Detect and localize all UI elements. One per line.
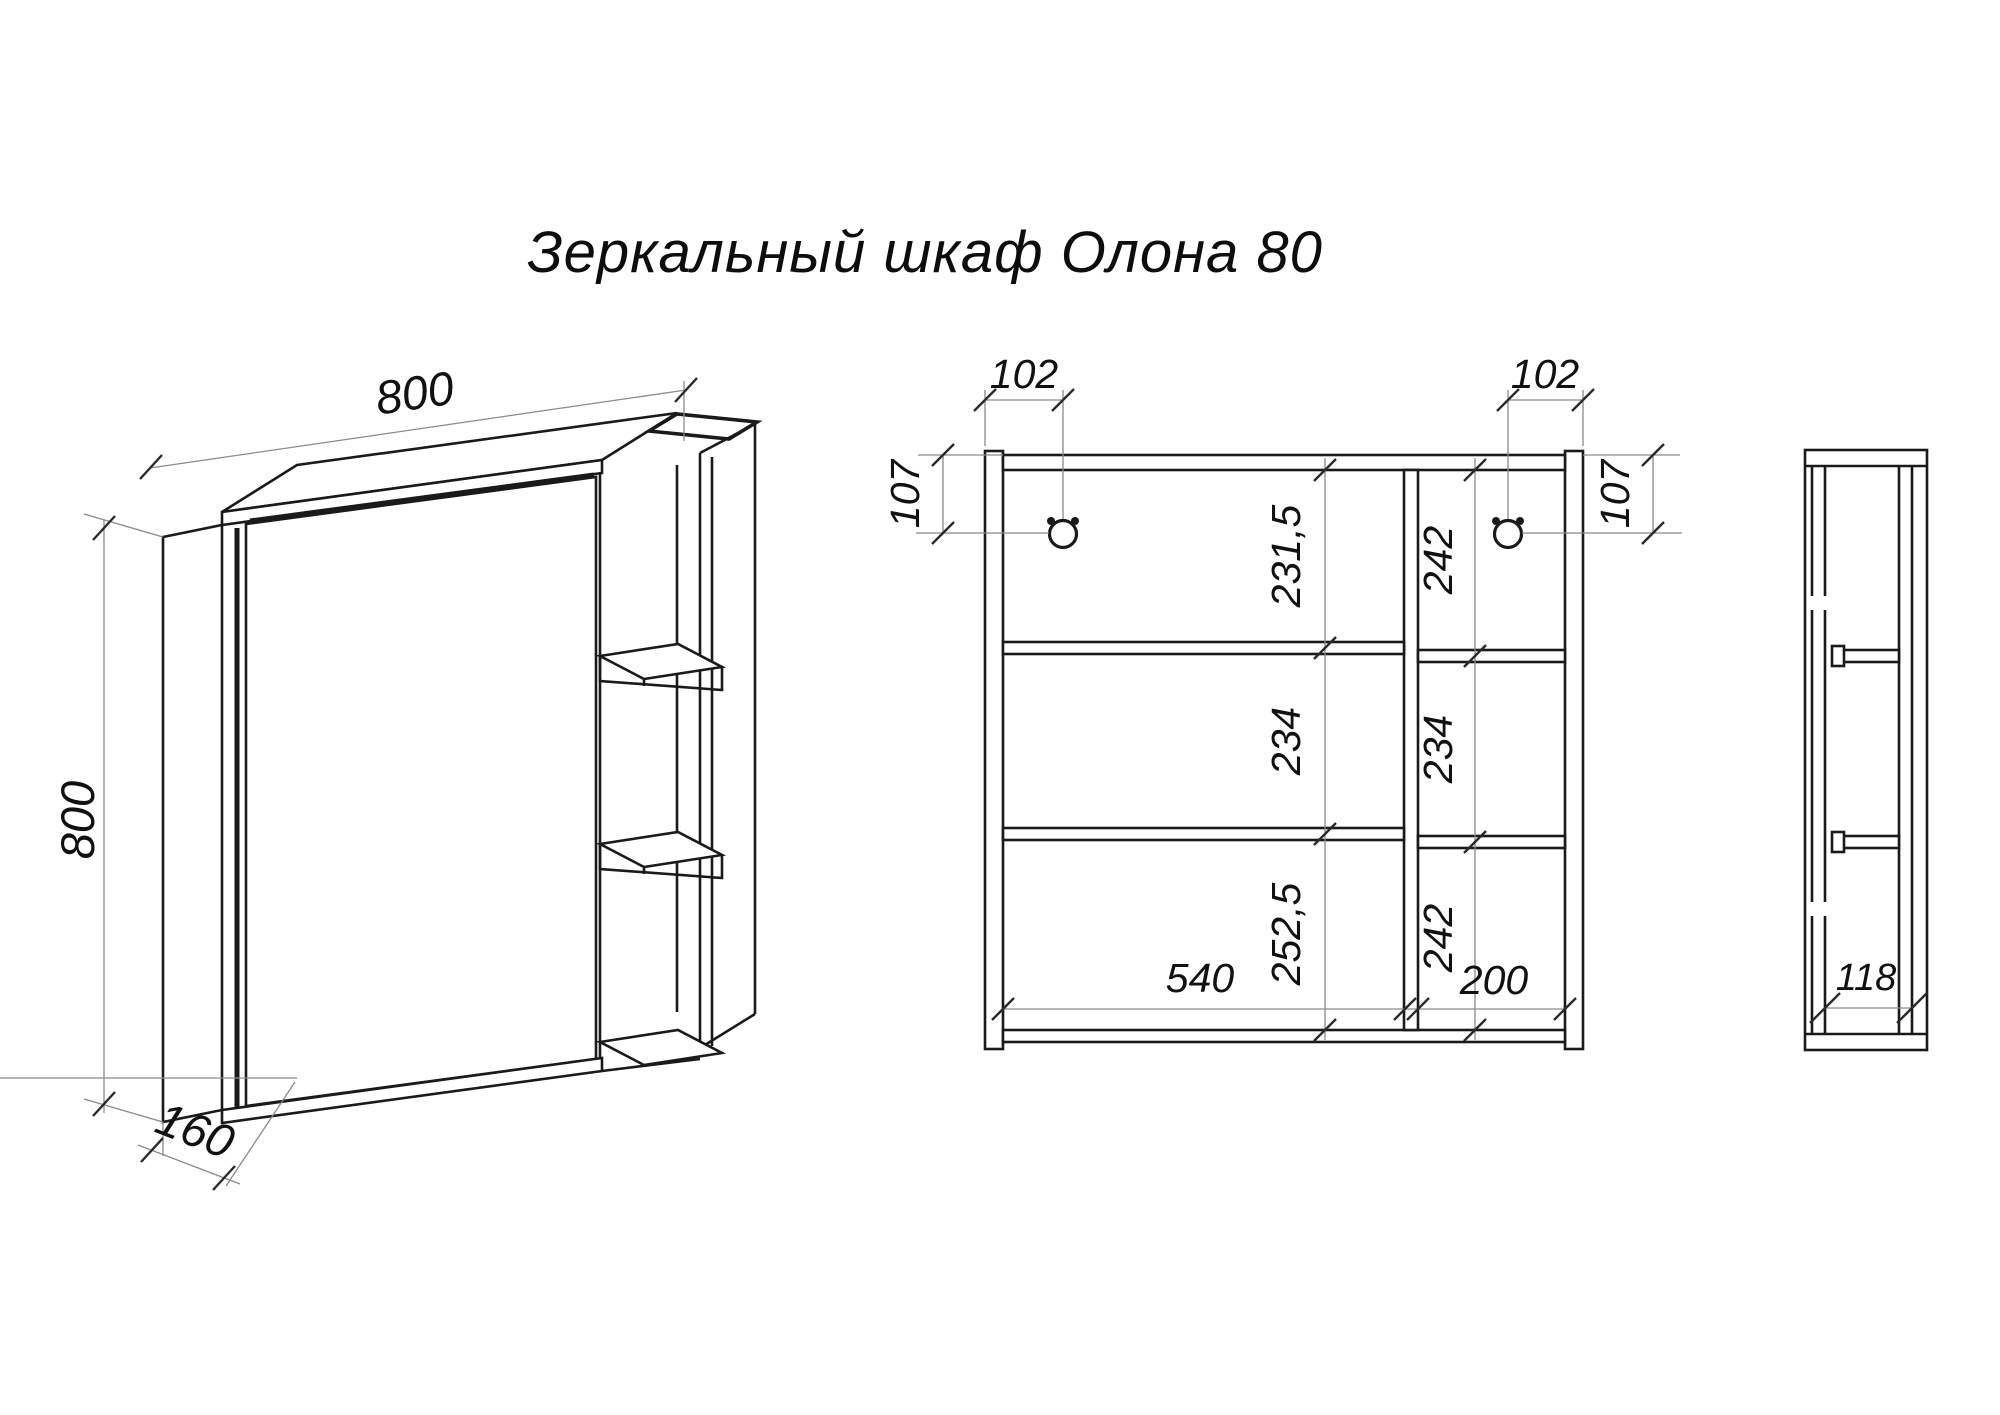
front-left-shelf-1 bbox=[1003, 642, 1404, 654]
dim-label: 231,5 bbox=[1263, 505, 1309, 609]
right-panel-bottom-edge bbox=[700, 1014, 755, 1048]
dim-label: 118 bbox=[1836, 957, 1897, 999]
front-left-shelf-2 bbox=[1003, 828, 1404, 840]
bay-floor bbox=[600, 1030, 722, 1065]
front-right-shelf-2 bbox=[1418, 836, 1565, 848]
dim-label: 102 bbox=[990, 351, 1059, 397]
hanger-mount-right-icon bbox=[1492, 517, 1524, 548]
dim-depth-label: 160 bbox=[149, 1091, 241, 1169]
dim-label: 234 bbox=[1415, 715, 1461, 784]
front-right-stile bbox=[1565, 451, 1583, 1049]
drawing-canvas: Зеркальный шкаф Олона 80 bbox=[0, 0, 2000, 1415]
dim-label: 234 bbox=[1263, 707, 1309, 776]
dim-label: 242 bbox=[1415, 904, 1461, 974]
dim-label: 540 bbox=[1166, 955, 1235, 1001]
front-left-stile bbox=[985, 451, 1003, 1049]
dim-height-label: 800 bbox=[51, 781, 104, 859]
side-shelf-1 bbox=[1832, 646, 1899, 666]
dim-label: 252,5 bbox=[1263, 883, 1309, 987]
dim-height-800: 800 bbox=[51, 514, 163, 1122]
dim-label: 107 bbox=[882, 458, 928, 529]
mirror-door bbox=[246, 477, 596, 1106]
hanger-mount-left-icon bbox=[1047, 517, 1079, 548]
front-bottom-rail bbox=[1003, 1030, 1565, 1042]
bay-shelf-1 bbox=[600, 644, 722, 690]
drawing-title: Зеркальный шкаф Олона 80 bbox=[527, 220, 1323, 285]
chain-dim-left-compartment: 231,5 234 252,5 bbox=[1263, 458, 1336, 1041]
dim-label: 107 bbox=[1592, 458, 1638, 529]
cabinet-left-panel bbox=[163, 525, 222, 1122]
front-right-shelf-1 bbox=[1418, 650, 1565, 662]
dim-label: 242 bbox=[1415, 526, 1461, 596]
bay-shelf-2 bbox=[600, 832, 722, 878]
dim-label: 102 bbox=[1511, 351, 1580, 397]
side-shelf-2 bbox=[1832, 832, 1899, 852]
perspective-view: 800 800 160 bbox=[0, 361, 757, 1190]
technical-drawing-page: Зеркальный шкаф Олона 80 bbox=[0, 0, 2000, 1415]
chain-dim-right-column: 242 234 242 bbox=[1415, 458, 1486, 1041]
dim-label: 200 bbox=[1459, 957, 1529, 1003]
side-view: 118 bbox=[1805, 450, 1927, 1050]
dim-width-label: 800 bbox=[372, 361, 457, 425]
front-top-rail bbox=[1003, 455, 1565, 470]
front-view: 102 102 107 107 bbox=[882, 351, 1682, 1049]
